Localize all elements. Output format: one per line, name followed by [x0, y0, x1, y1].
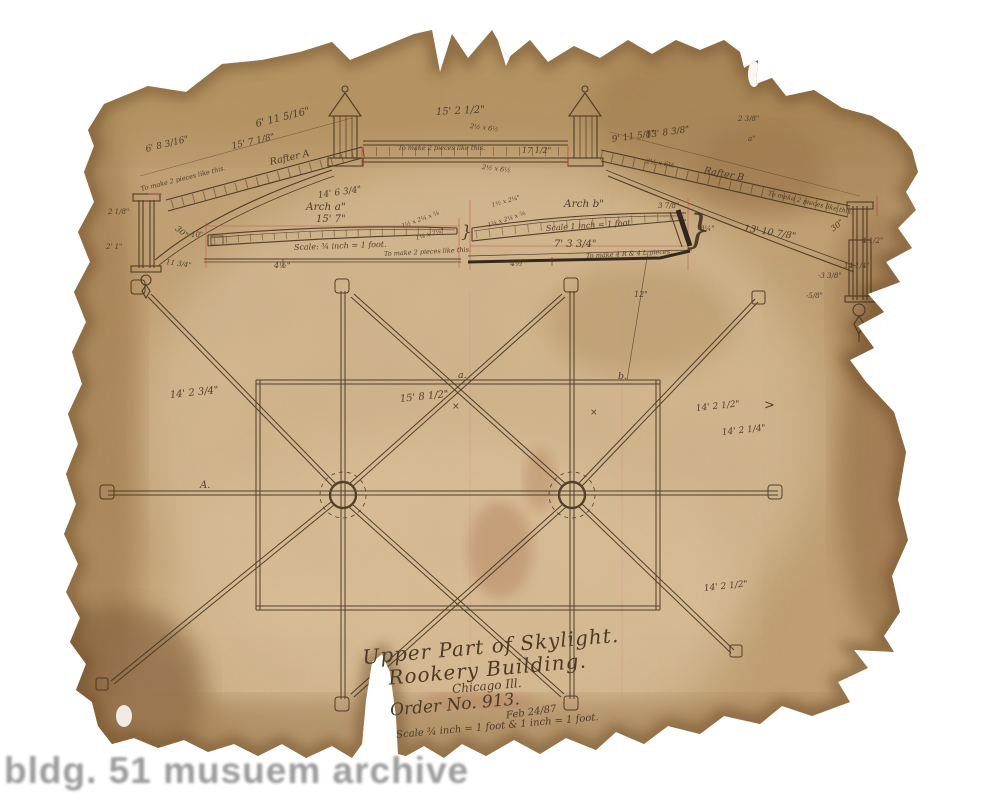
- paper-hole: [748, 61, 760, 87]
- scanned-drawing-page: 6' 8 3/16"6' 11 5/16"15' 7 1/8"Rafter AT…: [0, 0, 1000, 806]
- paper-hole: [116, 705, 132, 727]
- archive-watermark: bldg. 51 musuem archive: [4, 750, 469, 792]
